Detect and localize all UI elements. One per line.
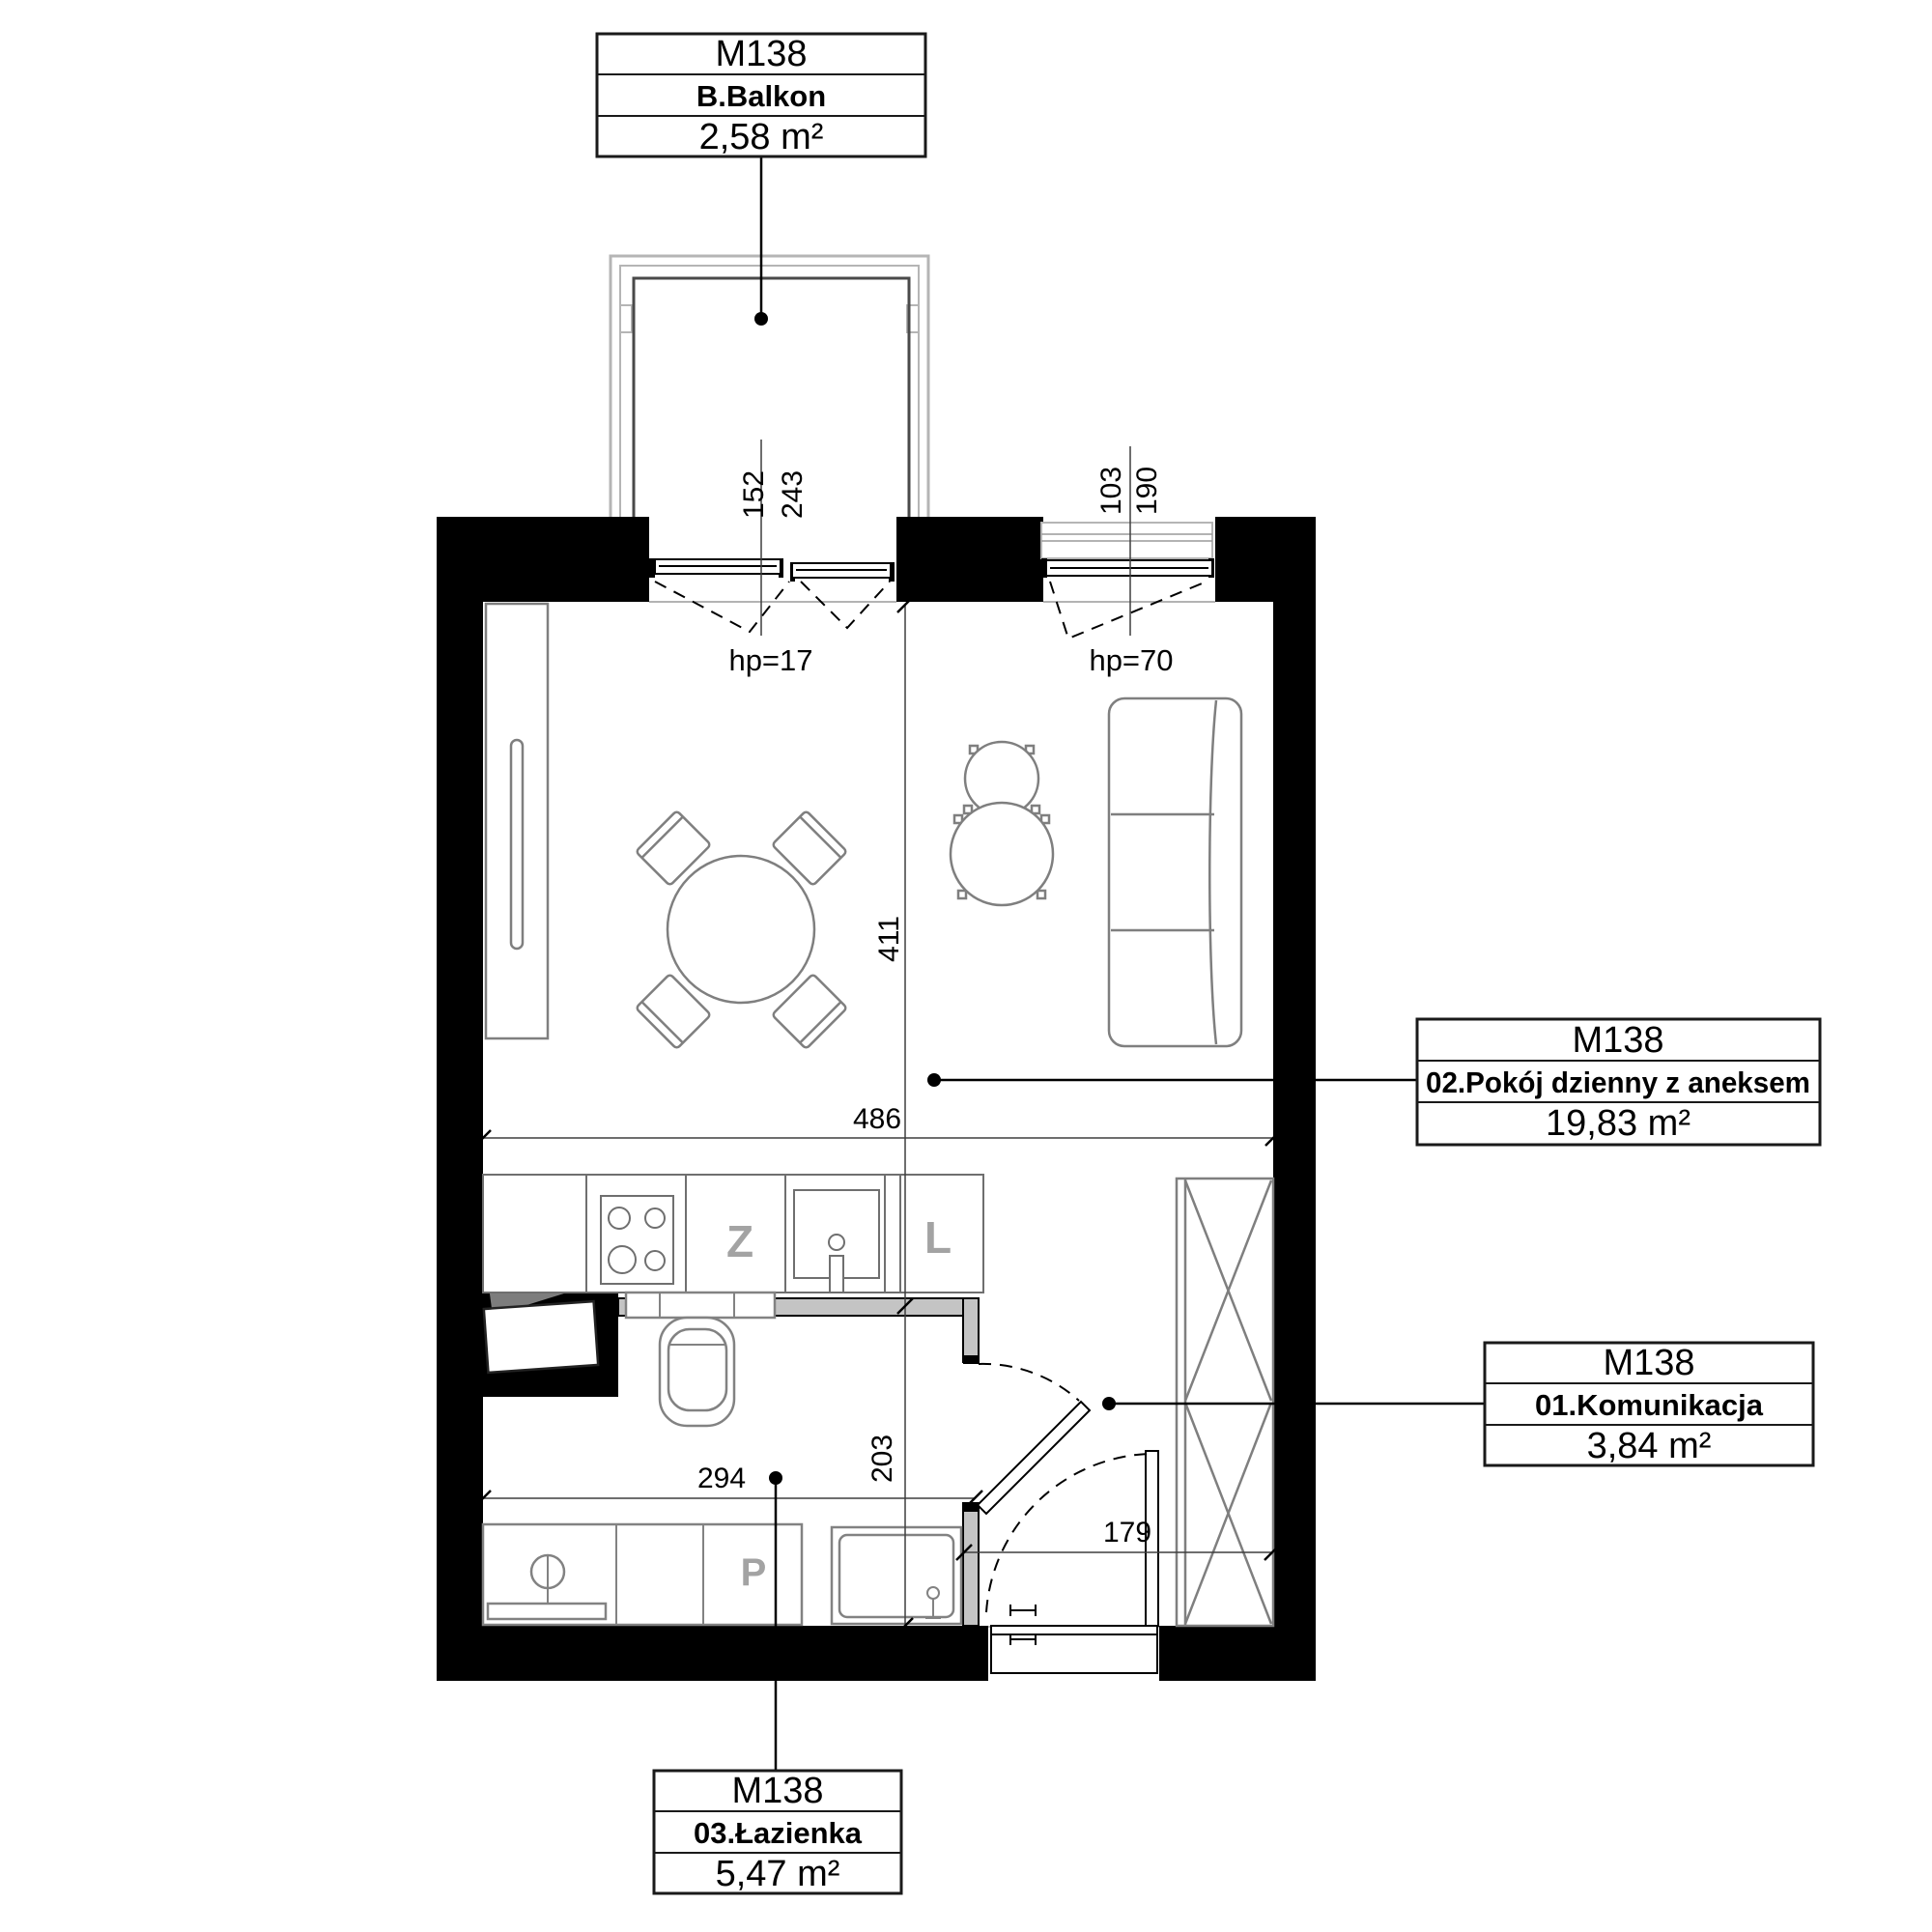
sink-symbol: Z: [726, 1216, 753, 1266]
balcony-area-label: 2,58 m²: [699, 117, 824, 157]
balcony-door: [649, 558, 896, 632]
living-unit-label: M138: [1572, 1020, 1663, 1061]
stove-icon: [601, 1196, 673, 1284]
tall-cabinet-icon: [486, 604, 548, 1038]
sill-height-window: hp=70: [1089, 643, 1173, 677]
washer-symbol: P: [741, 1551, 767, 1594]
dim-hall-width: 179: [1103, 1517, 1151, 1548]
dim-balcony-outer-width: 243: [777, 470, 809, 519]
balcony-name-label: B.Balkon: [696, 79, 826, 113]
kitchen-counter: Z L: [483, 1175, 983, 1293]
floor-plan-drawing: Z L P: [0, 0, 1932, 1932]
dim-living-depth: 411: [873, 916, 905, 962]
shower-icon: [832, 1527, 961, 1624]
dim-bathroom-width: 294: [697, 1463, 746, 1494]
dim-bathroom-depth: 203: [867, 1435, 898, 1483]
toilet-icon: [626, 1293, 775, 1426]
sofa-icon: [1109, 698, 1241, 1046]
bathroom-area-label: 5,47 m²: [716, 1854, 840, 1894]
living-room-window: [1041, 523, 1215, 639]
sill-height-balcony-door: hp=17: [728, 643, 812, 677]
label-box-living-room: M138 02.Pokój dzienny z aneksem 19,83 m²: [1417, 1019, 1820, 1145]
label-box-bathroom: M138 03.Łazienka 5,47 m²: [654, 1771, 901, 1894]
balcony-unit-label: M138: [715, 34, 807, 74]
side-tables-icon: [951, 742, 1053, 905]
dim-window-glass-width: 103: [1095, 467, 1127, 515]
living-name-label: 02.Pokój dzienny z aneksem: [1426, 1065, 1810, 1099]
dim-balcony-inner-width: 152: [738, 470, 770, 519]
dining-table-with-chairs: [636, 810, 847, 1049]
dimension-texts: 152 243 103 190 411 203 486 294 179 hp=1…: [697, 467, 1174, 1548]
label-box-hall: M138 01.Komunikacja 3,84 m²: [1485, 1343, 1813, 1466]
dim-living-width: 486: [853, 1103, 901, 1135]
label-box-balcony: M138 B.Balkon 2,58 m²: [597, 34, 925, 157]
bathroom-name-label: 03.Łazienka: [694, 1816, 863, 1850]
floor-plan-page: Z L P: [0, 0, 1932, 1932]
bathroom-unit-label: M138: [731, 1771, 823, 1811]
wardrobe-icon: [1177, 1179, 1273, 1626]
hall-unit-label: M138: [1603, 1343, 1694, 1383]
bathroom-door: [978, 1364, 1090, 1514]
fridge-symbol: L: [924, 1212, 952, 1263]
dim-window-width: 190: [1131, 467, 1163, 515]
hall-area-label: 3,84 m²: [1587, 1426, 1712, 1466]
kitchen-sink-icon: [794, 1190, 879, 1293]
utility-shaft: [483, 1281, 618, 1397]
living-area-label: 19,83 m²: [1546, 1103, 1690, 1144]
hall-name-label: 01.Komunikacja: [1535, 1388, 1764, 1422]
